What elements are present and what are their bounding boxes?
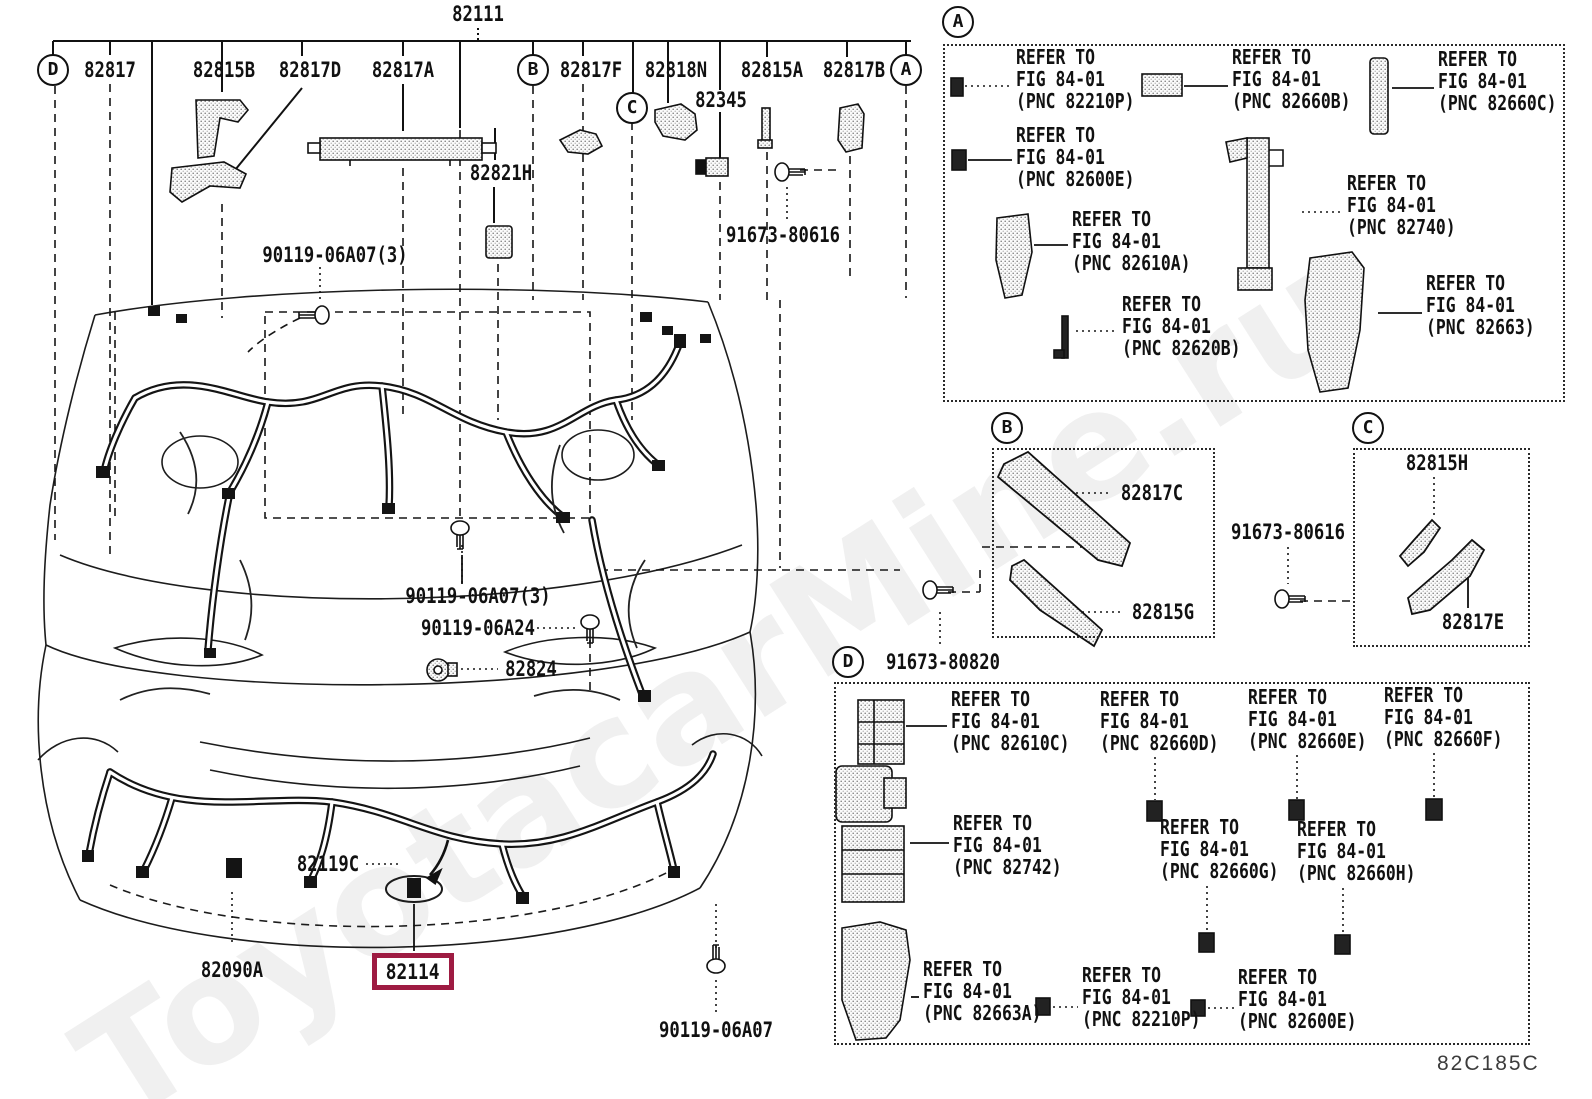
part-label-82114: 82114 bbox=[386, 960, 440, 984]
bolt-icon bbox=[707, 945, 725, 973]
callout-b: B bbox=[517, 54, 549, 86]
part-label-82119c[interactable]: 82119C bbox=[297, 852, 359, 876]
rail-82821h-icon bbox=[308, 138, 496, 166]
refer-note-82210p: REFER TOFIG 84-01(PNC 82210P) bbox=[1016, 46, 1134, 112]
connector-82821h-icon bbox=[486, 226, 512, 258]
part-label-82817a[interactable]: 82817A bbox=[372, 58, 434, 82]
refer-note-82660f: REFER TOFIG 84-01(PNC 82660F) bbox=[1384, 684, 1502, 750]
part-label-82815h[interactable]: 82815H bbox=[1406, 451, 1468, 475]
part-label-82815b[interactable]: 82815B bbox=[193, 58, 255, 82]
part-label-82821h[interactable]: 82821H bbox=[470, 161, 532, 185]
bolt-icon bbox=[581, 615, 599, 643]
refer-note-82610a: REFER TOFIG 84-01(PNC 82610A) bbox=[1072, 208, 1190, 274]
part-label-82817d[interactable]: 82817D bbox=[279, 58, 341, 82]
refer-note-82660c: REFER TOFIG 84-01(PNC 82660C) bbox=[1438, 48, 1556, 114]
connector-82345-icon bbox=[696, 158, 728, 176]
refer-note-82742: REFER TOFIG 84-01(PNC 82742) bbox=[953, 812, 1062, 878]
bracket-82818n-icon bbox=[655, 104, 697, 140]
part-label-90119-06a07-3-top[interactable]: 90119-06A07(3) bbox=[262, 243, 407, 267]
refer-note-82660g: REFER TOFIG 84-01(PNC 82660G) bbox=[1160, 816, 1278, 882]
part-label-82817[interactable]: 82817 bbox=[84, 58, 136, 82]
refer-note-82660b: REFER TOFIG 84-01(PNC 82660B) bbox=[1232, 46, 1350, 112]
part-label-91673-80616-top[interactable]: 91673-80616 bbox=[726, 223, 840, 247]
section-d-header: D bbox=[832, 646, 864, 678]
part-label-82818n[interactable]: 82818N bbox=[645, 58, 707, 82]
refer-note-82620b: REFER TOFIG 84-01(PNC 82620B) bbox=[1122, 293, 1240, 359]
part-label-82815a[interactable]: 82815A bbox=[741, 58, 803, 82]
part-label-82817c[interactable]: 82817C bbox=[1121, 481, 1183, 505]
bracket-82817b-icon bbox=[838, 104, 864, 152]
bolt-icon bbox=[451, 521, 469, 549]
refer-note-82600e: REFER TOFIG 84-01(PNC 82600E) bbox=[1016, 124, 1134, 190]
part-label-82345[interactable]: 82345 bbox=[695, 88, 747, 112]
branch-wires bbox=[120, 432, 645, 700]
part-label-82815g[interactable]: 82815G bbox=[1132, 600, 1194, 624]
refer-note-82740: REFER TOFIG 84-01(PNC 82740) bbox=[1347, 172, 1456, 238]
bolt-icon bbox=[299, 306, 329, 324]
part-label-82824[interactable]: 82824 bbox=[505, 657, 557, 681]
arrow-icon bbox=[428, 840, 448, 883]
part-label-82111[interactable]: 82111 bbox=[452, 2, 504, 26]
refer-note-82660d: REFER TOFIG 84-01(PNC 82660D) bbox=[1100, 688, 1218, 754]
highlighted-part-82114[interactable]: 82114 bbox=[372, 953, 454, 990]
wiring-harness bbox=[89, 342, 713, 895]
refer-note-82663a: REFER TOFIG 84-01(PNC 82663A) bbox=[923, 958, 1041, 1024]
refer-note-82663: REFER TOFIG 84-01(PNC 82663) bbox=[1426, 272, 1535, 338]
screw-icon bbox=[775, 163, 805, 181]
refer-note-82210p-d: REFER TOFIG 84-01(PNC 82210P) bbox=[1082, 964, 1200, 1030]
refer-note-82660e: REFER TOFIG 84-01(PNC 82660E) bbox=[1248, 686, 1366, 752]
bracket-82815b-icon bbox=[196, 100, 248, 158]
clamp-82824-icon bbox=[427, 659, 457, 681]
callout-c: C bbox=[616, 92, 648, 124]
refer-note-82610c: REFER TOFIG 84-01(PNC 82610C) bbox=[951, 688, 1069, 754]
part-label-82817b[interactable]: 82817B bbox=[823, 58, 885, 82]
part-label-82090a[interactable]: 82090A bbox=[201, 958, 263, 982]
screw-icon bbox=[923, 581, 953, 599]
section-b-header: B bbox=[991, 412, 1023, 444]
strip-82815a-icon bbox=[758, 108, 772, 148]
refer-note-82600e-d: REFER TOFIG 84-01(PNC 82600E) bbox=[1238, 966, 1356, 1032]
bracket-82817d-icon bbox=[170, 162, 246, 202]
screw-icon bbox=[1275, 590, 1305, 608]
refer-note-82660h: REFER TOFIG 84-01(PNC 82660H) bbox=[1297, 818, 1415, 884]
callout-a: A bbox=[890, 54, 922, 86]
part-label-82817f[interactable]: 82817F bbox=[560, 58, 622, 82]
part-label-91673-80616-c[interactable]: 91673-80616 bbox=[1231, 520, 1345, 544]
part-label-90119-06a07-3-mid[interactable]: 90119-06A07(3) bbox=[405, 584, 550, 608]
bracket-82817f-icon bbox=[560, 130, 602, 154]
diagram-code: 82C185C bbox=[1437, 1052, 1540, 1076]
part-label-82817e[interactable]: 82817E bbox=[1442, 610, 1504, 634]
part-label-90119-06a07-bottom[interactable]: 90119-06A07 bbox=[659, 1018, 773, 1042]
parts-diagram-page: ToyotacarMine.ru bbox=[0, 0, 1592, 1099]
part-label-91673-80820[interactable]: 91673-80820 bbox=[886, 650, 1000, 674]
part-label-90119-06a24[interactable]: 90119-06A24 bbox=[421, 616, 535, 640]
callout-d: D bbox=[37, 54, 69, 86]
section-a-header: A bbox=[942, 6, 974, 38]
section-c-header: C bbox=[1352, 412, 1384, 444]
